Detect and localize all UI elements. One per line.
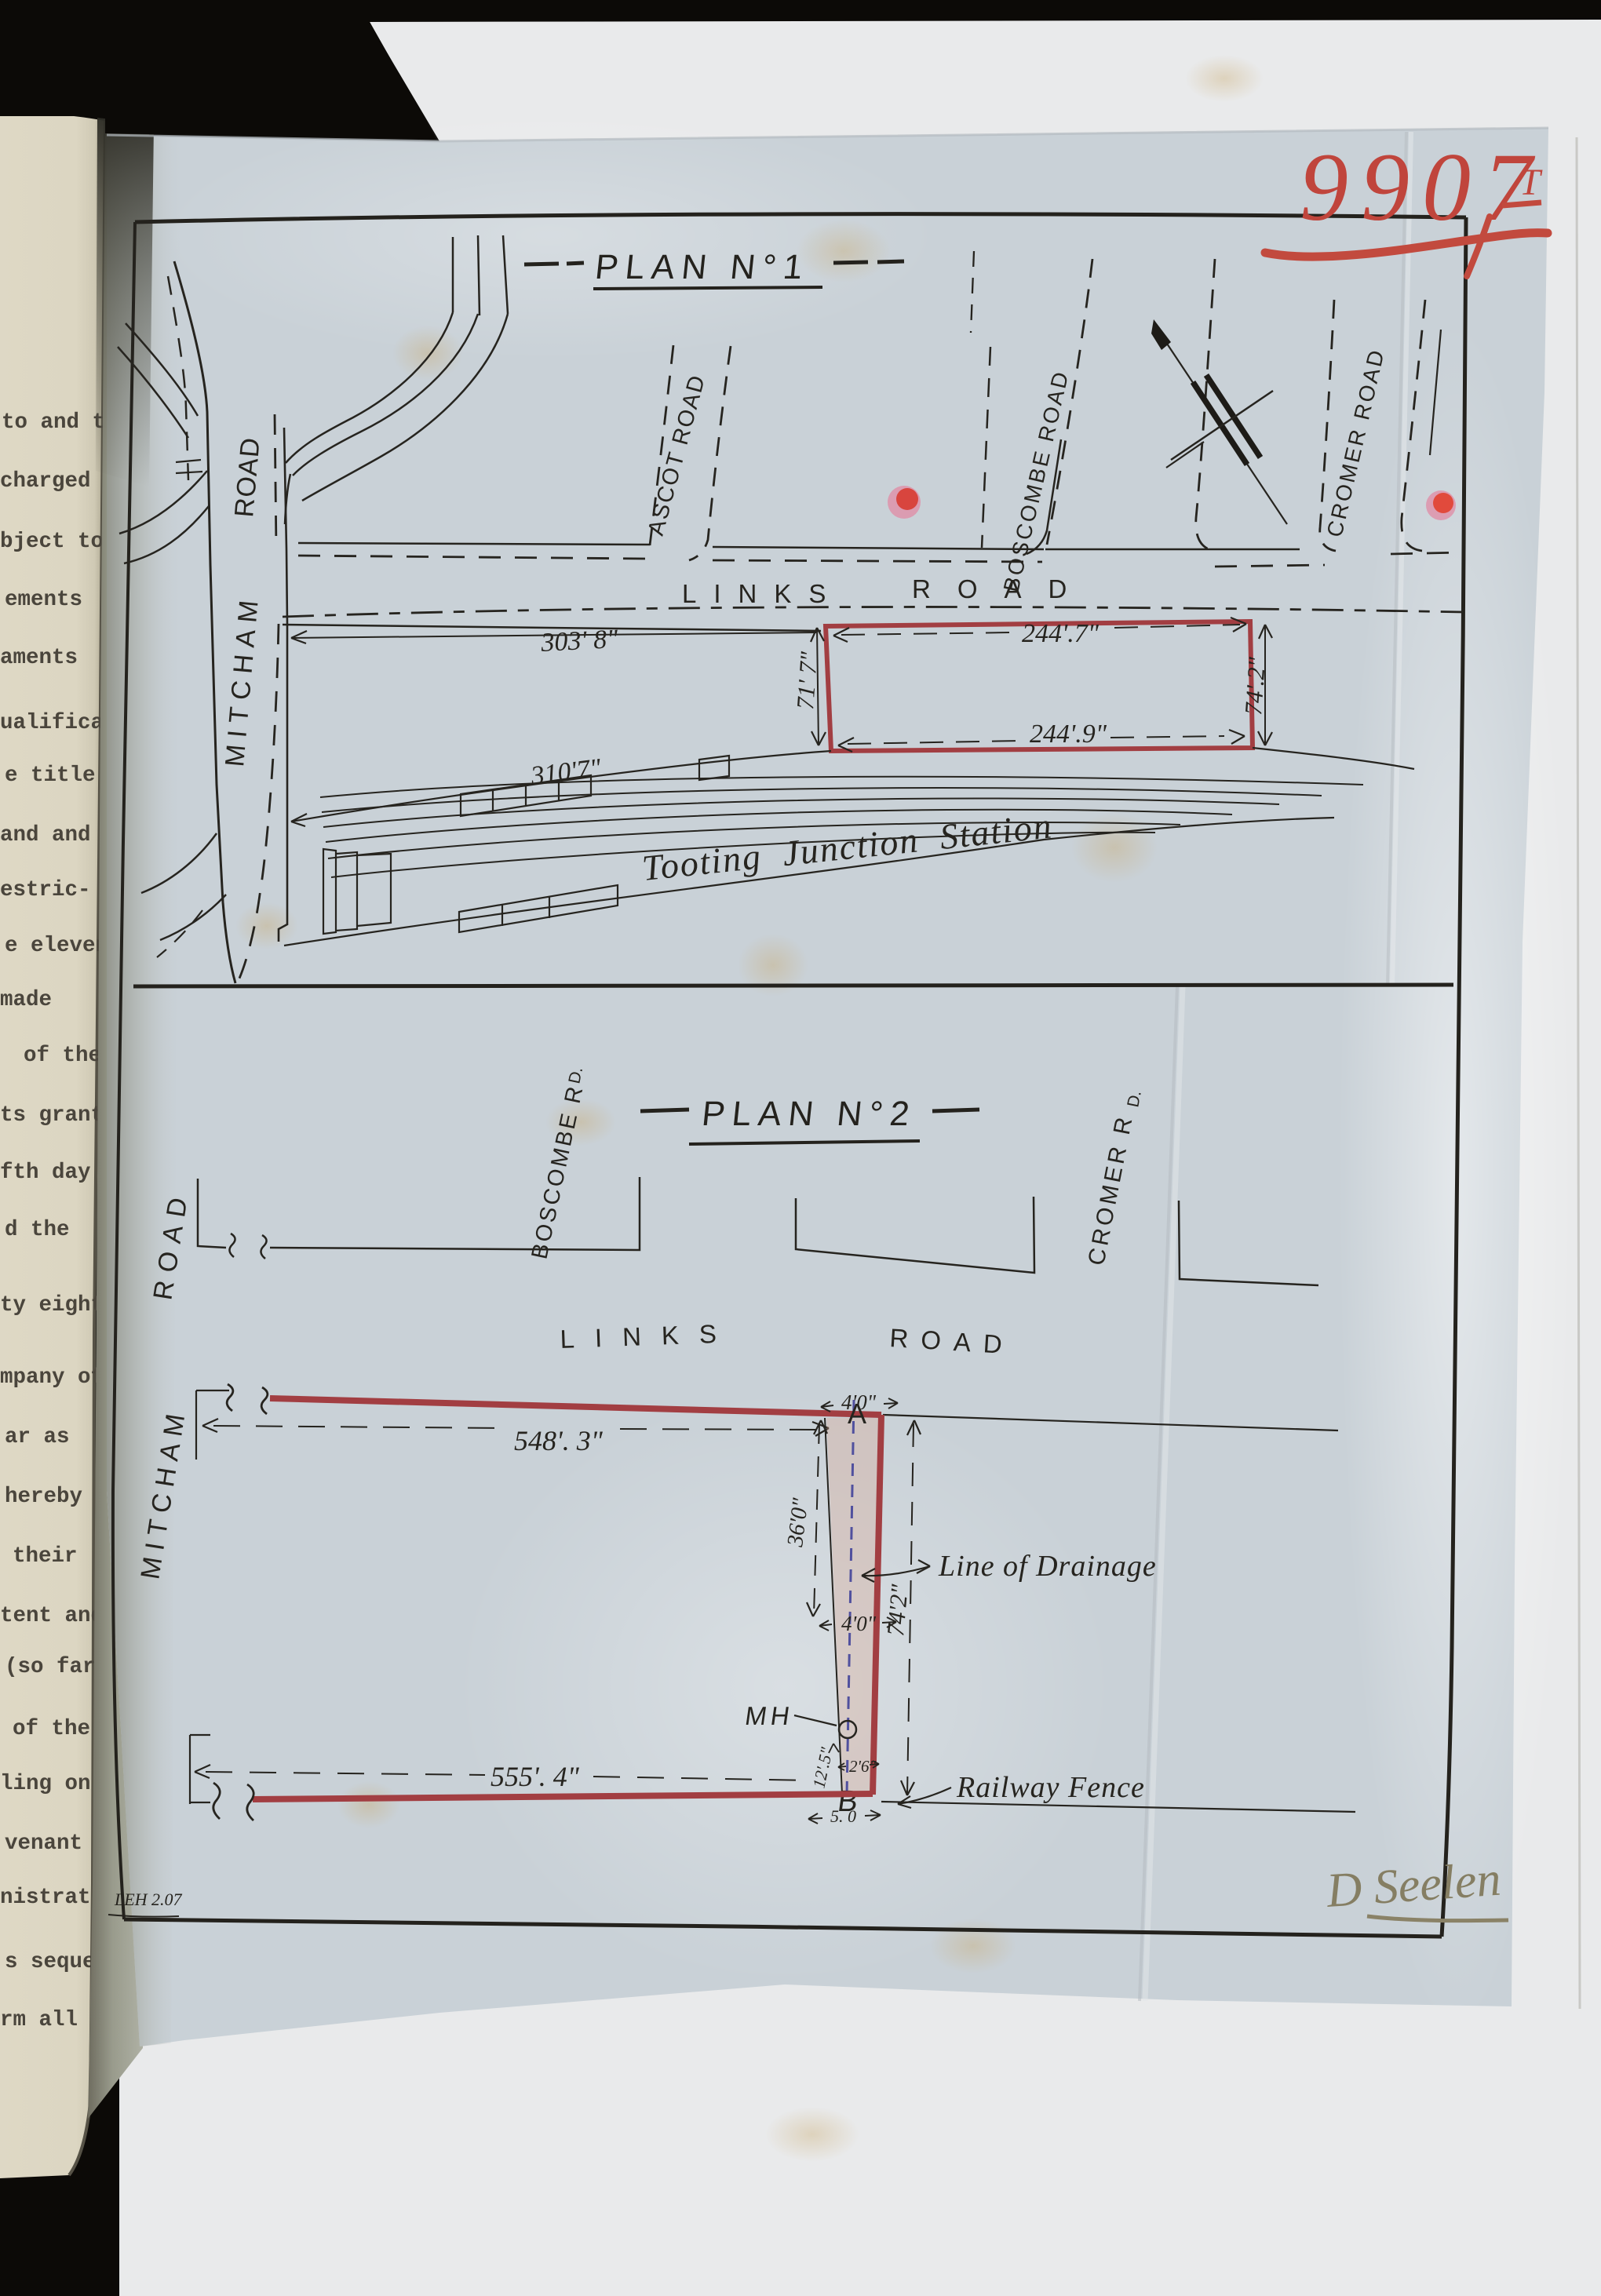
svg-text:4'0": 4'0" [841,1390,877,1414]
svg-text:of the: of the [24,1044,101,1068]
svg-text:MH: MH [743,1702,795,1731]
svg-text:244'.9": 244'.9" [1030,720,1107,749]
svg-text:9907: 9907 [1300,133,1544,241]
svg-text:2'6": 2'6" [849,1757,876,1776]
svg-text:ling on: ling on [0,1772,91,1796]
svg-text:LEH 2.07: LEH 2.07 [114,1890,183,1909]
svg-text:Railway Fence: Railway Fence [956,1771,1145,1804]
svg-text:5. 0: 5. 0 [830,1806,856,1826]
svg-text:Line of Drainage: Line of Drainage [938,1550,1157,1583]
svg-text:bject to: bject to [0,530,104,554]
svg-text:rm all: rm all [0,2008,78,2032]
svg-text:and and: and and [0,823,91,847]
svg-text:nistrat: nistrat [0,1886,91,1910]
svg-text:244'.7": 244'.7" [1022,619,1100,648]
svg-text:ty eight: ty eight [0,1293,104,1317]
svg-text:e title: e title [5,764,96,788]
svg-text:of the: of the [13,1717,90,1741]
svg-text:(so far: (so far [5,1655,96,1679]
svg-text:their: their [13,1544,78,1569]
svg-text:D.: D. [1124,1089,1145,1109]
svg-text:LINKS: LINKS [560,1318,738,1354]
svg-text:fth day: fth day [0,1161,91,1185]
svg-text:tent and: tent and [0,1604,104,1628]
svg-text:d the: d the [5,1218,70,1242]
svg-text:PLAN N°2: PLAN N°2 [700,1095,918,1133]
svg-text:estric-: estric- [0,878,91,902]
svg-text:ts grant: ts grant [0,1103,104,1128]
svg-text:4'0": 4'0" [841,1612,877,1635]
svg-text:ualifica: ualifica [0,711,104,735]
svg-text:mpany of: mpany of [0,1365,104,1390]
svg-text:555'. 4": 555'. 4" [491,1761,580,1792]
svg-text:aments: aments [0,646,78,670]
svg-text:hereby: hereby [5,1485,82,1509]
svg-text:made: made [0,988,52,1012]
svg-text:548'. 3": 548'. 3" [514,1425,604,1456]
svg-text:charged: charged [0,469,91,494]
svg-text:71' 7": 71' 7" [791,650,822,710]
svg-text:e eleven: e eleven [5,934,108,958]
svg-text:to and t: to and t [2,410,105,435]
svg-text:ar as: ar as [5,1425,70,1449]
svg-text:74'.2": 74'.2" [1239,655,1271,716]
svg-text:venant: venant [5,1831,82,1856]
svg-text:303' 8": 303' 8" [539,625,619,658]
svg-text:T: T [1519,162,1543,203]
svg-text:74'2": 74'2" [881,1583,914,1638]
svg-text:LINKS: LINKS [682,579,843,608]
svg-text:PLAN N°1: PLAN N°1 [593,248,811,286]
svg-text:ements: ements [5,588,82,612]
